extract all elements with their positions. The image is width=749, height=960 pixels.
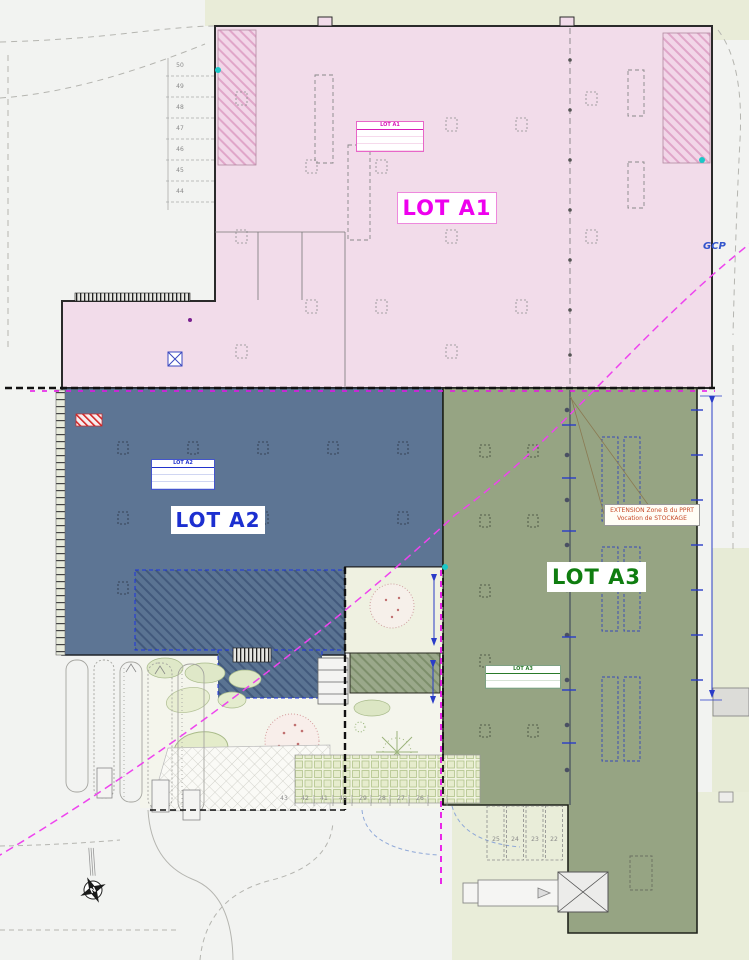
gcp-label-text: GCP [703, 241, 726, 252]
mini-table-a3-title: LOT A3 [486, 666, 560, 674]
extension-note: EXTENSION Zone B du PPRT Vocation de STO… [604, 504, 700, 526]
lot-a3-label-text: LOT A3 [552, 565, 641, 589]
gcp-label: GCP [703, 241, 726, 252]
parking-number: 46 [172, 146, 188, 153]
mini-table-a1-row [357, 137, 423, 144]
parking-number: 41 [316, 795, 332, 802]
lot-a1-label: LOT A1 [397, 192, 497, 224]
parking-number: 22 [546, 836, 562, 843]
parking-number: 48 [172, 104, 188, 111]
parking-number: 29 [355, 795, 371, 802]
lot-a3-label: LOT A3 [547, 562, 646, 592]
parking-number: 24 [507, 836, 523, 843]
lot-a1-label-text: LOT A1 [403, 196, 492, 220]
mini-table-a1-row [357, 144, 423, 151]
parking-number: 44 [172, 188, 188, 195]
parking-number: 23 [527, 836, 543, 843]
mini-table-a2-row [152, 475, 214, 482]
parking-number: 25 [488, 836, 504, 843]
mini-table-a2: LOT A2 [151, 459, 215, 490]
xbox-symbol [168, 352, 182, 366]
parking-number: 49 [172, 83, 188, 90]
parking-number: 43 [276, 795, 292, 802]
extension-note-line2: Vocation de STOCKAGE [606, 515, 698, 523]
parking-number: 50 [172, 62, 188, 69]
parking-number: 26 [412, 795, 428, 802]
parking-number: 45 [172, 167, 188, 174]
mini-table-a1-title: LOT A1 [357, 122, 423, 130]
parking-number: 42 [297, 795, 313, 802]
lot-a2-label-text: LOT A2 [175, 508, 260, 532]
mini-table-a2-row [152, 468, 214, 475]
mini-table-a1: LOT A1 [356, 121, 424, 152]
parking-number: 27 [393, 795, 409, 802]
extension-note-line1: EXTENSION Zone B du PPRT [606, 507, 698, 515]
mini-table-a2-title: LOT A2 [152, 460, 214, 468]
mini-table-a1-row [357, 130, 423, 137]
mini-table-a3-row [486, 681, 560, 688]
parking-number: 28 [374, 795, 390, 802]
lot-a2-label: LOT A2 [171, 506, 265, 534]
mini-table-a3-row [486, 674, 560, 681]
mini-table-a3: LOT A3 [485, 665, 561, 689]
site-plan: N LOT A1 LOT A2 LOT A3 GCP EXTENSION Zon… [0, 0, 749, 960]
mini-table-a2-row [152, 482, 214, 489]
parking-number: 40 [335, 795, 351, 802]
parking-number: 47 [172, 125, 188, 132]
